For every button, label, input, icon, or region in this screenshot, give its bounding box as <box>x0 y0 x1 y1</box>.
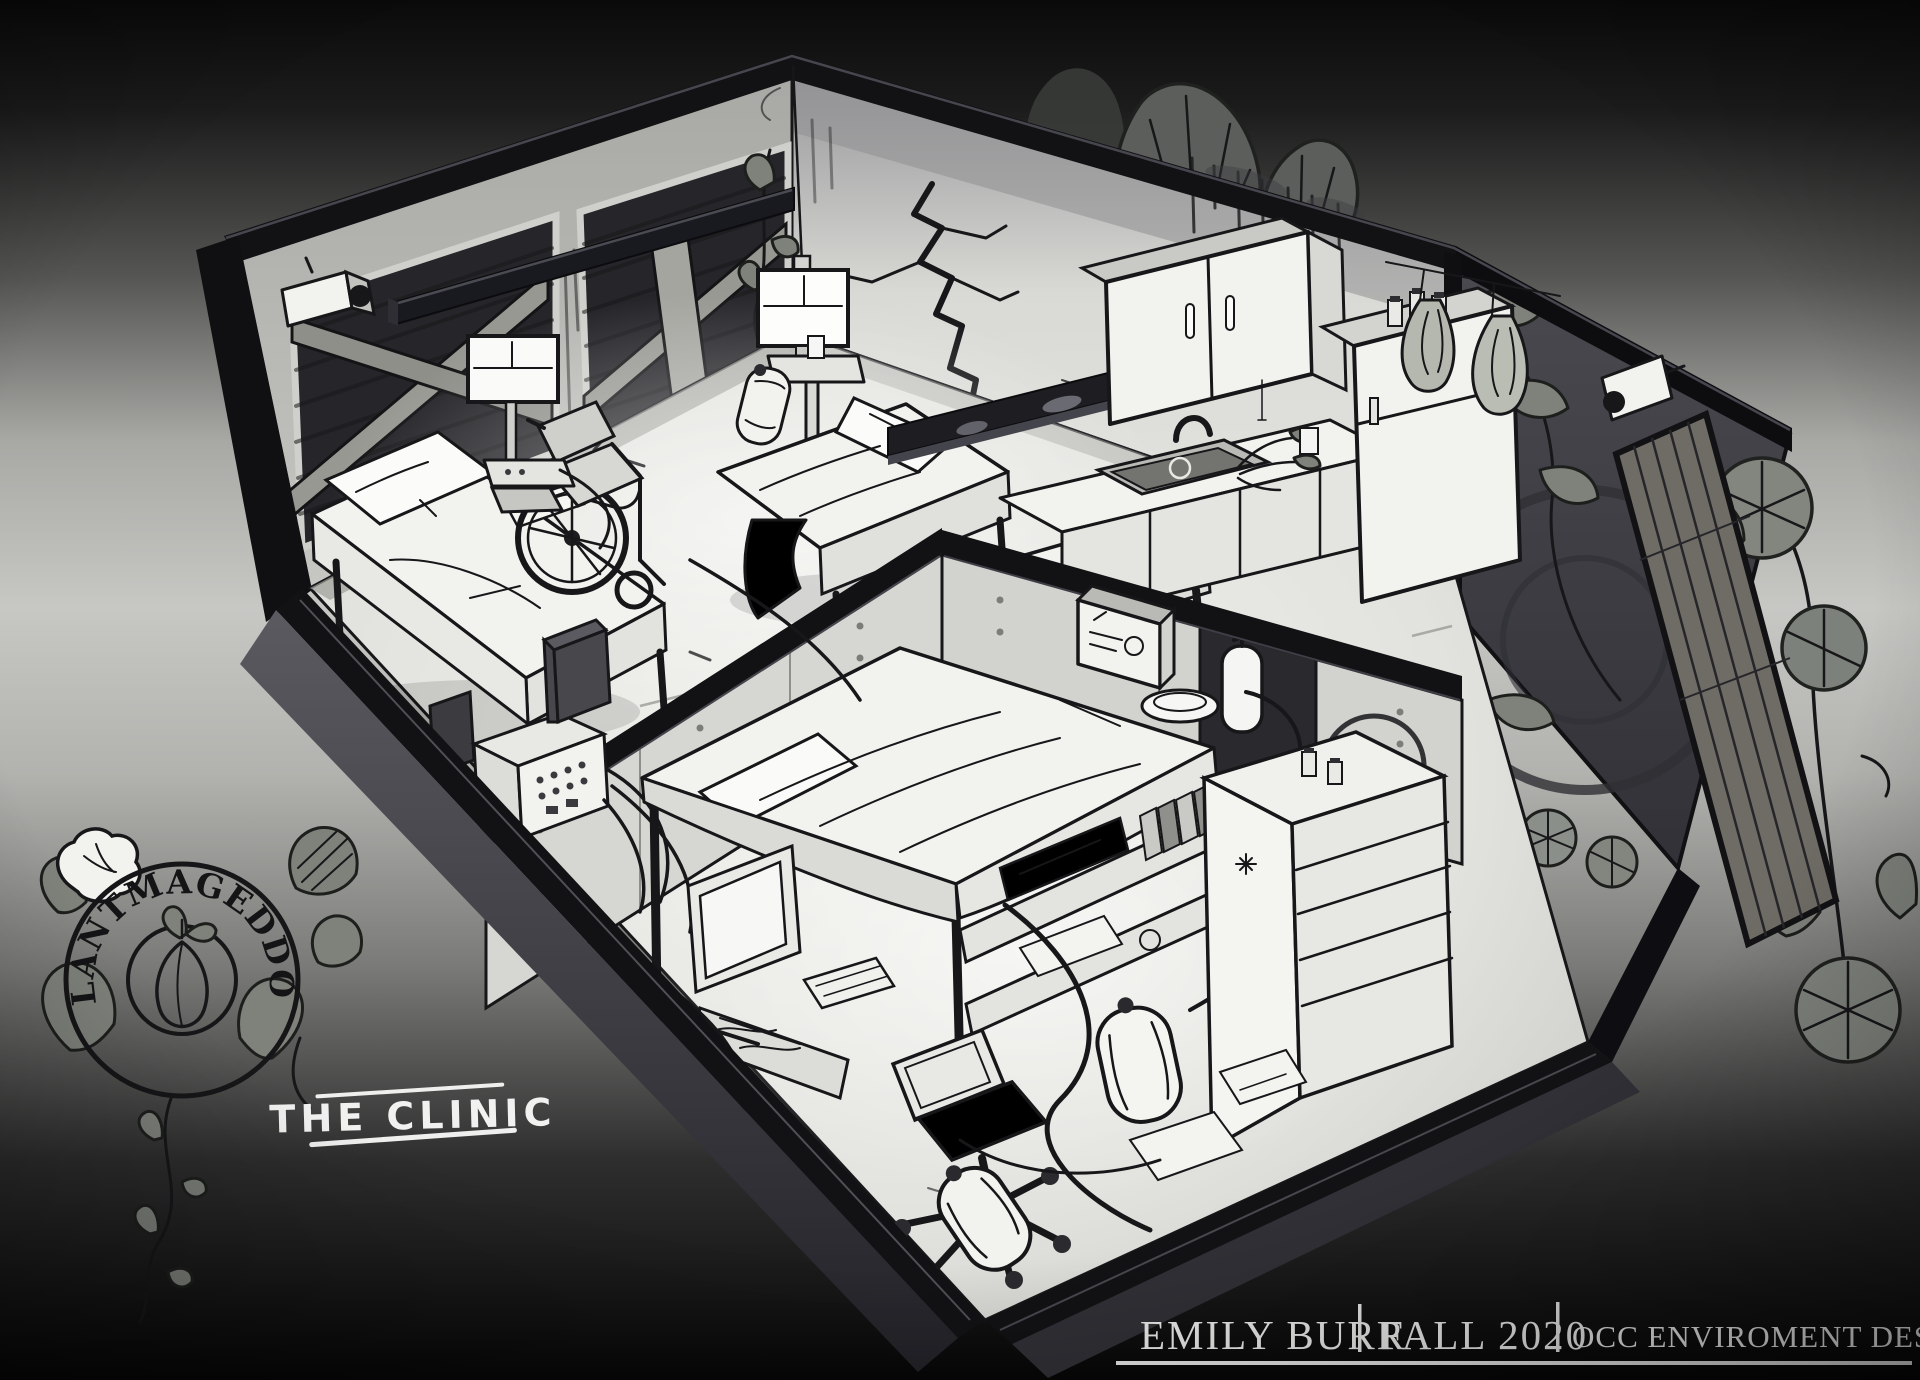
bowl <box>1142 690 1218 722</box>
pill-bottle <box>1302 752 1316 776</box>
scene-title: THE CLINIC <box>269 1090 557 1141</box>
concept-art-page: PLANTMAGEDDON THE CLINIC EMILY BURR FALL… <box>0 0 1920 1380</box>
credit-artist: EMILY BURR <box>1140 1312 1406 1358</box>
credit-separator <box>1556 1302 1560 1352</box>
pill-bottle <box>1328 762 1342 784</box>
credit-separator <box>1358 1304 1362 1352</box>
credit-course: OCC ENVIROMENT DESIGN <box>1572 1319 1920 1354</box>
clinic-concept-art: PLANTMAGEDDON THE CLINIC EMILY BURR FALL… <box>0 0 1920 1380</box>
credit-underline <box>1116 1361 1912 1365</box>
